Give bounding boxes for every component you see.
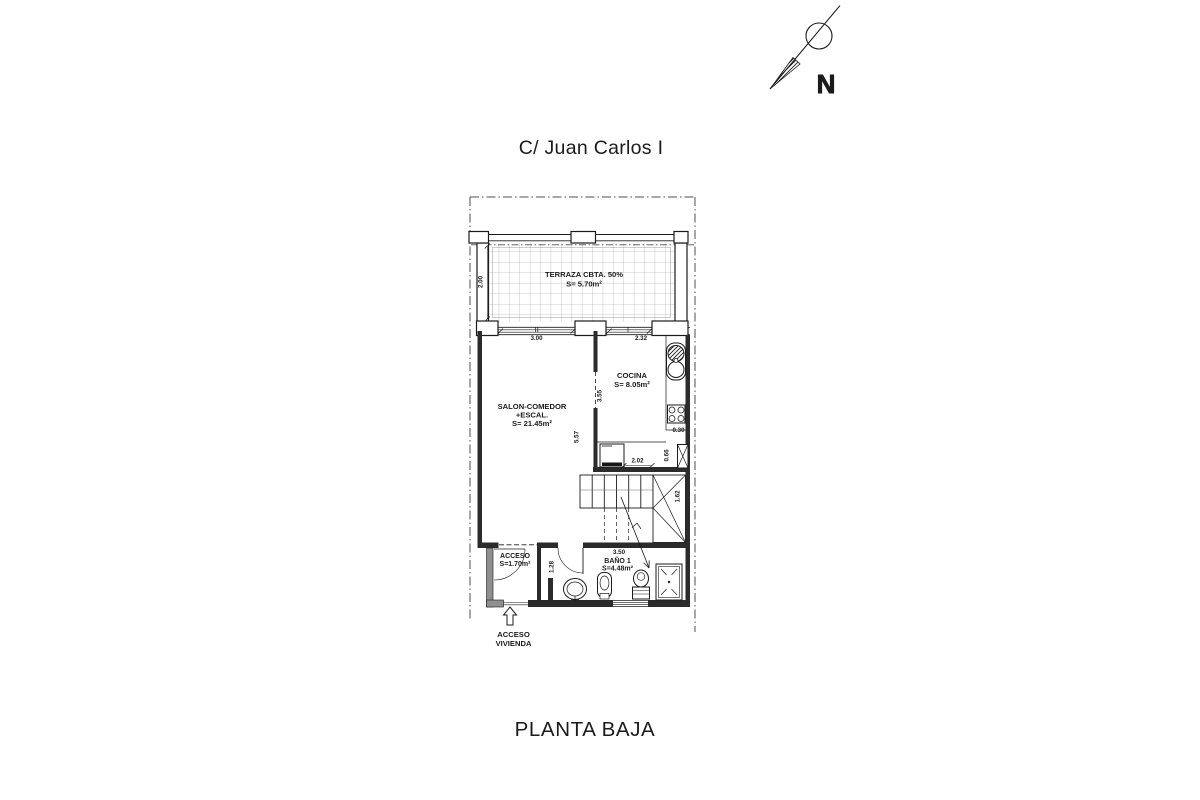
wall-partition-lower — [594, 408, 598, 472]
wall-cocina-bottom — [593, 467, 690, 472]
dim-shaft-height: 0.66 — [664, 449, 671, 462]
stove-burner — [678, 407, 684, 413]
dim-cocina-depth: 3.55 — [597, 389, 604, 402]
acceso-porch: ACCESO S=1.70m² — [494, 549, 531, 580]
north-arrow-circle — [806, 23, 832, 49]
window-row: 3.00 2.32 — [477, 321, 691, 342]
bano-area: S=4.48m² — [602, 566, 634, 573]
facade-pillar-center — [571, 232, 596, 244]
wall-building-bottom — [528, 600, 690, 607]
floor-plan-drawing: C/ Juan Carlos I N 2.00 TERRAZA CBTA. 50… — [0, 0, 1200, 800]
bidet-base — [600, 594, 609, 600]
acceso-area: S=1.70m² — [500, 561, 532, 568]
entrance-label-2: VIVIENDA — [496, 639, 532, 648]
wall-partition-upper — [594, 331, 598, 372]
cocina-area: S= 8.05m² — [614, 380, 650, 389]
terraza-area: S= 5.70m² — [566, 280, 602, 289]
north-letter: N — [817, 69, 836, 99]
stairs: 1.62 3.50 — [580, 475, 686, 568]
dim-cocina-width: 2.02 — [631, 458, 644, 465]
bidet-bowl — [600, 576, 609, 590]
facade-pillar-left — [469, 232, 489, 244]
wall-vent-opening — [613, 601, 648, 606]
shower-drain — [668, 581, 670, 583]
washbasin-bowl — [567, 582, 583, 596]
stove-burner — [669, 416, 675, 422]
dim-cocina-window: 2.32 — [635, 335, 648, 342]
bano-label: BAÑO 1 — [604, 556, 631, 565]
wall-bath-stub — [548, 578, 553, 601]
dim-salon-depth: 5.57 — [574, 430, 581, 443]
dim-stair-winder: 1.62 — [675, 490, 682, 503]
floor-plan-page: C/ Juan Carlos I N 2.00 TERRAZA CBTA. 50… — [0, 0, 1200, 800]
wall-salon-bottom-right — [583, 543, 690, 549]
wall-salon-bottom-left — [478, 543, 499, 549]
wall-left-exterior — [478, 331, 483, 548]
north-arrow: N — [770, 6, 840, 100]
stove-burner — [678, 416, 684, 422]
terraza: 2.00 TERRAZA CBTA. 50% S= 5.70m² — [471, 243, 694, 322]
dim-tick — [647, 329, 652, 334]
wall-porch-left — [487, 548, 494, 607]
entrance-label-1: ACCESO — [497, 630, 530, 639]
salon-area: S= 21.45m² — [512, 419, 552, 428]
entrance: ACCESO VIVIENDA — [496, 607, 532, 648]
wall-bath-divider — [537, 548, 541, 601]
dim-tick — [498, 329, 503, 334]
window-pillar-right — [652, 321, 688, 336]
acceso-label: ACCESO — [500, 553, 531, 560]
salon-comedor: SALON-COMEDOR +ESCAL. S= 21.45m² 5.57 — [498, 402, 581, 443]
stove-burner — [669, 407, 675, 413]
plan-title: PLANTA BAJA — [515, 718, 656, 741]
north-arrow-spike — [770, 58, 800, 90]
toilet-bowl-inner — [637, 573, 645, 581]
fridge-base — [602, 463, 622, 467]
dim-bath-width: 1.28 — [549, 560, 556, 573]
stair-treads-dashed — [604, 508, 628, 542]
sink-bowl — [668, 362, 684, 378]
facade-top — [469, 232, 688, 244]
terraza-wall-right — [675, 243, 687, 322]
dim-bath-length: 3.50 — [613, 549, 626, 556]
dim-terraza-depth: 2.00 — [478, 275, 485, 288]
facade-pillar-right — [674, 232, 688, 244]
sink-tap — [674, 359, 678, 363]
dim-salon-window: 3.00 — [530, 335, 543, 342]
toilet-cistern — [633, 587, 650, 599]
dim-counter-width: 0.30 — [672, 427, 685, 434]
street-title: C/ Juan Carlos I — [519, 137, 664, 159]
cocina: COCINA S= 8.05m² 3.55 0.30 0.66 2.02 — [597, 335, 689, 468]
wall-porch-corner — [487, 600, 504, 607]
bath-door-swing — [558, 548, 583, 573]
dim-tick — [607, 329, 612, 334]
window-pillar-center — [575, 321, 606, 336]
wall-salon-bottom-mid — [537, 543, 558, 549]
terraza-label: TERRAZA CBTA. 50% — [545, 270, 623, 279]
entrance-arrow — [504, 607, 517, 625]
cocina-label: COCINA — [617, 371, 647, 380]
